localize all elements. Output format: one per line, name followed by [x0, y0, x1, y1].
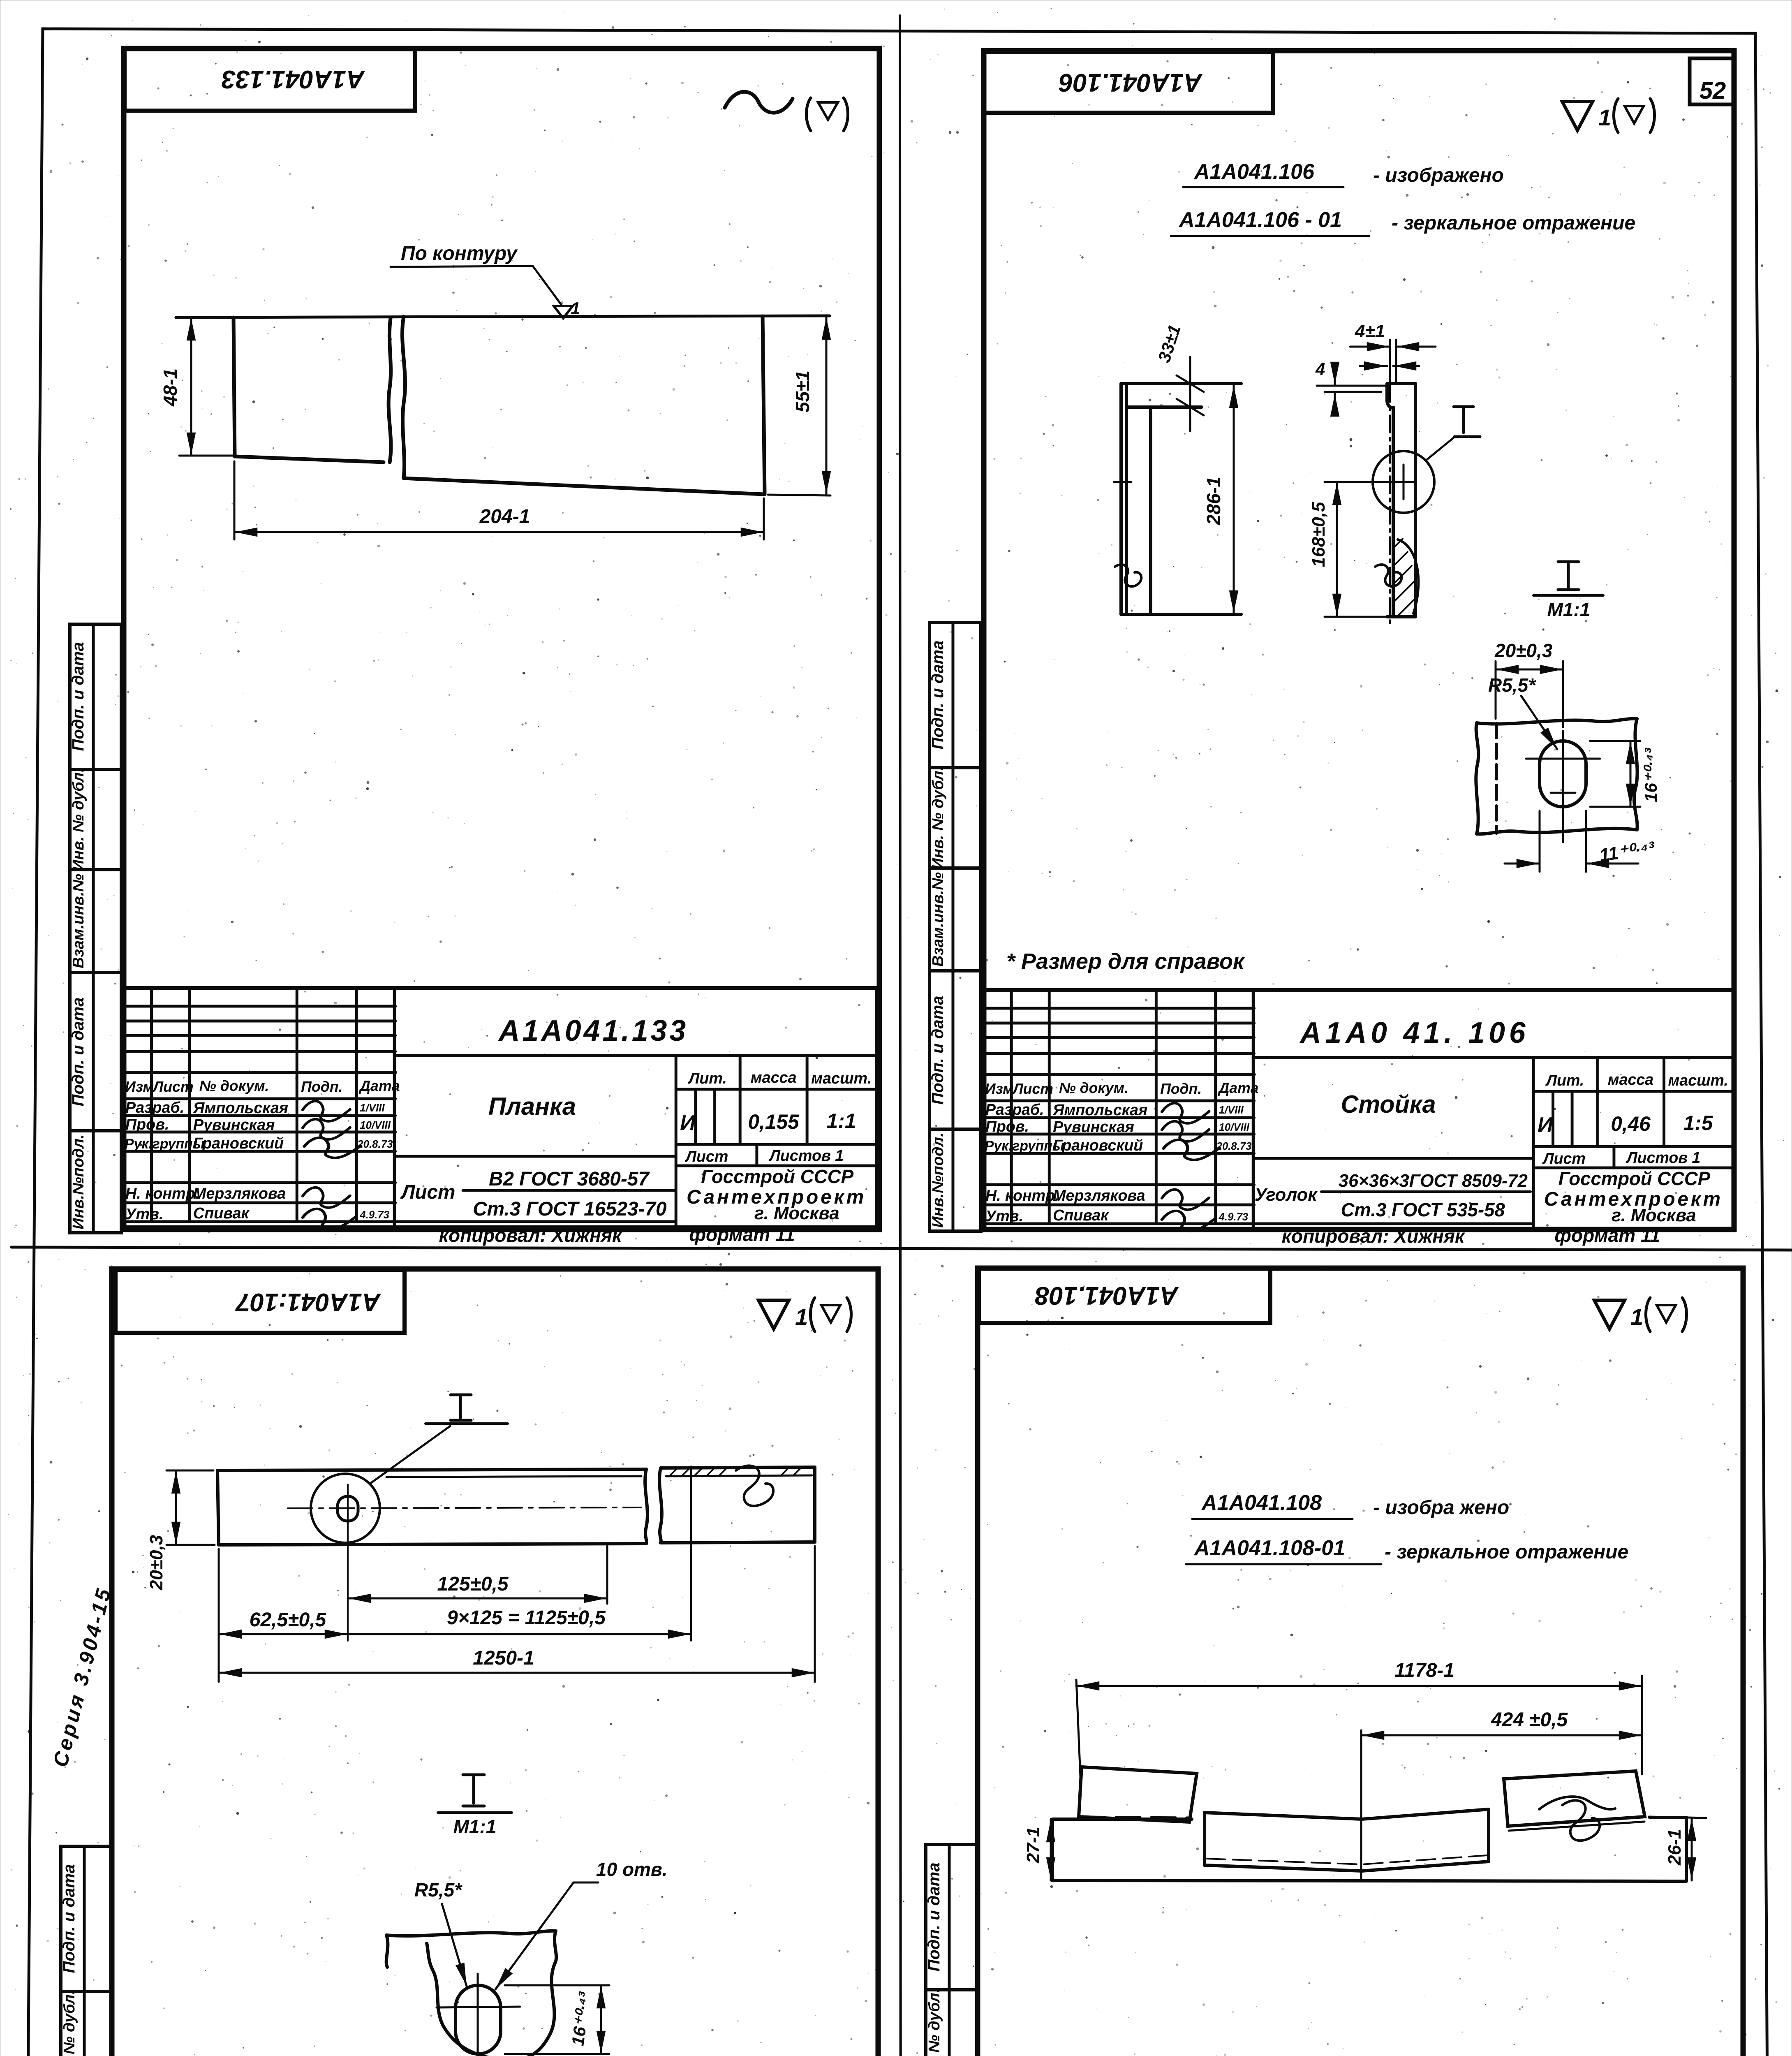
svg-text:Рувинская: Рувинская [1053, 1118, 1134, 1136]
svg-text:1:1: 1:1 [827, 1109, 856, 1132]
svg-text:125±0,5: 125±0,5 [437, 1573, 509, 1595]
svg-text:26-1: 26-1 [1665, 1829, 1685, 1866]
svg-text:Спивак: Спивак [193, 1205, 250, 1222]
svg-text:9×125 = 1125±0,5: 9×125 = 1125±0,5 [447, 1607, 606, 1629]
svg-text:М1:1: М1:1 [453, 1816, 497, 1837]
svg-text:1: 1 [571, 299, 580, 318]
svg-text:формат 11: формат 11 [689, 1224, 795, 1245]
svg-text:4±1: 4±1 [1355, 321, 1385, 341]
svg-text:1/VIII: 1/VIII [1219, 1104, 1244, 1116]
svg-text:Серия 3.904-15: Серия 3.904-15 [49, 1584, 116, 1769]
svg-text:Грановский: Грановский [1053, 1137, 1143, 1154]
svg-text:По контуру: По контуру [401, 243, 518, 264]
svg-text:А1А041.108-01: А1А041.108-01 [1193, 1536, 1345, 1560]
svg-text:0,46: 0,46 [1611, 1112, 1651, 1135]
svg-text:В2 ГОСТ 3680-57: В2 ГОСТ 3680-57 [489, 1168, 650, 1190]
svg-text:1250-1: 1250-1 [473, 1647, 534, 1669]
svg-text:А1А041.108: А1А041.108 [1201, 1491, 1322, 1515]
svg-text:Рувинская: Рувинская [193, 1116, 275, 1134]
svg-text:16⁺⁰·⁴³: 16⁺⁰·⁴³ [568, 1991, 594, 2047]
svg-text:Мерзлякова: Мерзлякова [1053, 1187, 1145, 1204]
svg-text:204-1: 204-1 [479, 506, 530, 528]
svg-text:М1:1: М1:1 [1547, 599, 1591, 620]
svg-text:Ст.3 ГОСТ 535-58: Ст.3 ГОСТ 535-58 [1341, 1199, 1505, 1220]
svg-text:Лист: Лист [400, 1181, 456, 1203]
svg-text:А1А041.106: А1А041.106 [1193, 160, 1315, 184]
svg-text:4: 4 [1315, 359, 1325, 379]
svg-text:А1А041.133: А1А041.133 [498, 1014, 688, 1047]
svg-text:48-1: 48-1 [160, 368, 181, 407]
svg-text:424 ±0,5: 424 ±0,5 [1491, 1709, 1568, 1731]
svg-text:10 отв.: 10 отв. [596, 1859, 668, 1880]
svg-text:А1А041.133: А1А041.133 [222, 65, 365, 93]
svg-text:И: И [680, 1111, 696, 1135]
svg-text:Спивак: Спивак [1053, 1207, 1109, 1224]
svg-text:1: 1 [795, 1304, 808, 1330]
svg-text:* Размер для справок: * Размер для справок [1006, 949, 1245, 974]
svg-text:20.8.73: 20.8.73 [357, 1139, 393, 1150]
svg-text:копировал: Хижняк: копировал: Хижняк [1282, 1225, 1466, 1247]
svg-text:копировал: Хижняк: копировал: Хижняк [439, 1225, 623, 1246]
svg-text:168±0,5: 168±0,5 [1309, 502, 1329, 567]
svg-text:20±0,3: 20±0,3 [1494, 640, 1553, 661]
svg-text:36×36×3ГОСТ 8509-72: 36×36×3ГОСТ 8509-72 [1339, 1171, 1528, 1191]
svg-text:Мерзлякова: Мерзлякова [193, 1185, 286, 1202]
svg-text:- изображено: - изображено [1373, 164, 1504, 186]
svg-text:27-1: 27-1 [1023, 1827, 1043, 1864]
svg-text:1:5: 1:5 [1683, 1111, 1713, 1135]
svg-text:А1А0 41. 106: А1А0 41. 106 [1299, 1016, 1529, 1049]
svg-text:R5,5*: R5,5* [1488, 674, 1536, 696]
svg-text:4.9.73: 4.9.73 [359, 1209, 389, 1221]
svg-text:4.9.73: 4.9.73 [1219, 1211, 1249, 1223]
svg-text:20.8.73: 20.8.73 [1216, 1141, 1252, 1152]
svg-text:10/VIII: 10/VIII [360, 1120, 391, 1131]
svg-text:55±1: 55±1 [792, 370, 813, 412]
svg-text:А1А041.106 - 01: А1А041.106 - 01 [1178, 208, 1342, 232]
svg-text:16⁺⁰·⁴³: 16⁺⁰·⁴³ [1641, 748, 1660, 802]
svg-text:R5,5*: R5,5* [414, 1879, 462, 1901]
svg-text:А1А041.108: А1А041.108 [1035, 1281, 1179, 1310]
svg-text:Планка: Планка [488, 1093, 576, 1120]
svg-text:1/VIII: 1/VIII [360, 1102, 385, 1114]
svg-text:1: 1 [1630, 1304, 1643, 1330]
svg-text:0,155: 0,155 [748, 1110, 800, 1133]
svg-text:- зеркальное отражение: - зеркальное отражение [1385, 1541, 1628, 1563]
svg-text:формат 11: формат 11 [1554, 1225, 1660, 1246]
svg-text:286-1: 286-1 [1203, 477, 1224, 526]
svg-text:Стойка: Стойка [1341, 1091, 1436, 1118]
svg-text:1: 1 [1598, 104, 1611, 130]
svg-text:- зеркальное отражение: - зеркальное отражение [1392, 212, 1635, 234]
svg-text:Грановский: Грановский [193, 1135, 284, 1152]
svg-text:А1А041:107: А1А041:107 [235, 1288, 382, 1316]
svg-text:52: 52 [1700, 77, 1726, 104]
svg-text:Ямпольская: Ямпольская [193, 1100, 288, 1117]
svg-text:10/VIII: 10/VIII [1219, 1122, 1250, 1133]
svg-text:11⁺⁰·⁴³: 11⁺⁰·⁴³ [1598, 838, 1656, 865]
svg-text:62,5±0,5: 62,5±0,5 [250, 1609, 327, 1631]
svg-text:И: И [1538, 1113, 1554, 1137]
svg-text:33±1: 33±1 [1154, 322, 1184, 365]
svg-text:Ямпольская: Ямпольская [1052, 1102, 1147, 1119]
svg-text:1178-1: 1178-1 [1394, 1660, 1454, 1681]
svg-text:20±0,3: 20±0,3 [146, 1535, 166, 1591]
svg-text:- изобра жено: - изобра жено [1373, 1497, 1509, 1519]
svg-text:Уголок: Уголок [1255, 1185, 1318, 1205]
svg-text:Ст.3 ГОСТ 16523-70: Ст.3 ГОСТ 16523-70 [473, 1198, 667, 1220]
svg-text:А1А041.106: А1А041.106 [1059, 68, 1203, 97]
